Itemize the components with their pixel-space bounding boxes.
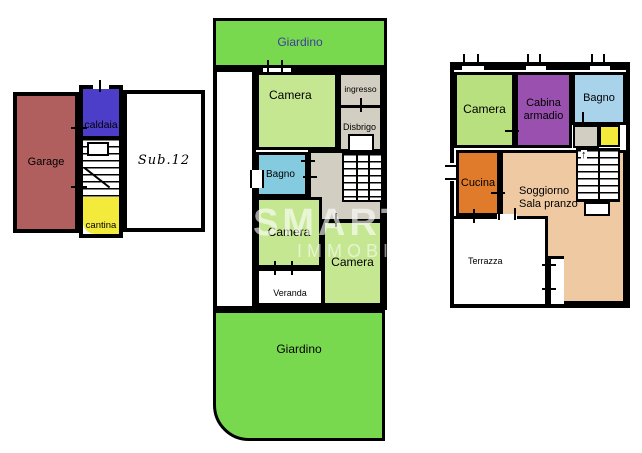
door-window-marker xyxy=(514,208,516,220)
room-label-camera-3: Camera xyxy=(331,256,374,270)
stairs-ground xyxy=(83,139,119,197)
room-label-bagno-second: Bagno xyxy=(583,92,615,105)
door-window-marker xyxy=(463,54,465,66)
garden-bottom-label: Giardino xyxy=(276,343,321,357)
room-cantina: cantina xyxy=(83,195,119,234)
door-window-marker xyxy=(303,176,317,178)
garden-top: Giardino xyxy=(213,18,387,68)
room-camera-right: Camera xyxy=(454,72,515,148)
room-label-terrazza: Terrazza xyxy=(468,256,503,266)
room-label-bagno-first: Bagno xyxy=(266,169,295,181)
room-bagno-second: Bagno xyxy=(572,72,626,125)
room-label-cantina: cantina xyxy=(86,220,117,231)
window-gap xyxy=(590,66,610,70)
door-window-marker xyxy=(505,130,519,132)
stair-landing xyxy=(348,134,374,152)
stairs-up-arrow-icon: ↑ xyxy=(581,150,587,161)
door-window-marker xyxy=(539,54,541,66)
door-window-marker xyxy=(71,186,87,188)
door-window-marker xyxy=(360,98,362,112)
room-label-sub12: Sub.12 xyxy=(138,154,190,169)
door-window-marker xyxy=(445,178,457,180)
stair-landing-room xyxy=(573,125,599,148)
door-window-marker xyxy=(473,209,475,223)
stairs-second: ↑ xyxy=(576,148,620,202)
door-window-marker xyxy=(281,60,283,72)
window-marker xyxy=(250,170,264,188)
room-label-caldaia: caldaia xyxy=(84,119,117,131)
garden-top-label: Giardino xyxy=(277,36,322,50)
room-label-garage: Garage xyxy=(28,156,65,169)
door-window-marker xyxy=(603,54,605,66)
door-window-marker xyxy=(491,192,505,194)
room-label-veranda: Veranda xyxy=(273,288,307,298)
door-window-marker xyxy=(301,160,315,162)
window-gap xyxy=(462,66,484,70)
room-label-camera-1: Camera xyxy=(269,89,312,103)
door-window-marker xyxy=(591,54,593,66)
room-cucina: Cucina xyxy=(456,150,500,216)
room-terrazza: Terrazza xyxy=(454,216,548,304)
door-window-marker xyxy=(527,54,529,66)
garden-level-plan: Camera ingresso Disbrigo Bagno Camera Ca… xyxy=(213,68,387,310)
stair-rail xyxy=(356,154,358,200)
garage-level-plan: Garage caldaia cantina Sub.12 xyxy=(10,84,206,240)
door-gap xyxy=(93,85,109,89)
room-veranda: Veranda xyxy=(256,268,324,306)
window-gap xyxy=(526,66,546,70)
stair-rail xyxy=(598,150,600,200)
small-yellow-room xyxy=(599,125,620,147)
door-window-marker xyxy=(477,54,479,66)
stair-column: caldaia cantina xyxy=(79,85,123,238)
door-window-marker xyxy=(274,261,276,275)
door-window-marker xyxy=(71,127,87,129)
door-window-marker xyxy=(542,264,556,266)
floorplan-canvas: Garage caldaia cantina Sub.12 Giardino xyxy=(0,0,642,453)
room-garage: Garage xyxy=(13,92,79,233)
door-window-marker xyxy=(99,80,101,92)
stair-landing xyxy=(87,142,109,156)
door-window-marker xyxy=(542,288,556,290)
door-window-marker xyxy=(335,213,337,227)
room-label-ingresso: ingresso xyxy=(344,85,376,95)
room-cabina-armadio: Cabina armadio xyxy=(515,72,572,148)
room-label-camera-right: Camera xyxy=(463,103,506,117)
room-label-cabina-armadio: Cabina armadio xyxy=(522,97,565,122)
room-label-camera-2: Camera xyxy=(268,226,311,240)
stair-rail xyxy=(368,154,370,200)
door-window-marker xyxy=(291,261,293,275)
upper-level-plan: Camera Cabina armadio Bagno Cucina Soggi… xyxy=(450,62,630,308)
room-camera-3: Camera xyxy=(322,220,383,306)
room-camera-2: Camera xyxy=(256,197,322,268)
room-sub12: Sub.12 xyxy=(123,90,205,232)
door-window-marker xyxy=(267,60,269,72)
room-label-cucina: Cucina xyxy=(461,177,495,190)
door-window-marker xyxy=(445,165,457,167)
room-label-disbrigo: Disbrigo xyxy=(343,122,376,132)
room-camera-1: Camera xyxy=(256,72,338,150)
garden-bottom: Giardino xyxy=(213,310,385,441)
room-caldaia: caldaia xyxy=(83,89,119,139)
stair-diagonal-line xyxy=(84,167,110,188)
door-window-marker xyxy=(498,208,500,220)
stairs-first xyxy=(342,152,383,202)
stair-landing xyxy=(584,202,610,216)
door-window-marker xyxy=(582,112,584,126)
